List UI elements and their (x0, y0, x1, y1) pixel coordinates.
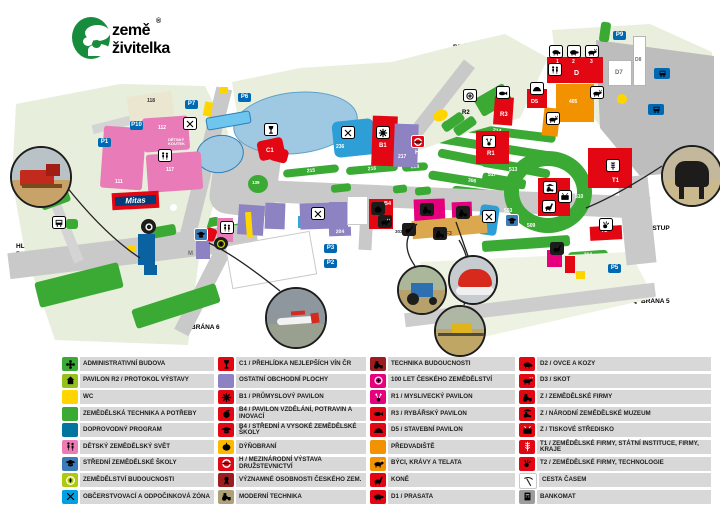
legend-item: TECHNIKA BUDOUCNOSTI (370, 357, 515, 371)
legend-item-label: STŘEDNÍ ZEMĚDĚLSKÉ ŠKOLY (80, 457, 214, 471)
pumpkin-legend-swatch (218, 440, 234, 454)
legend-item-label: CESTA ČASEM (539, 473, 711, 487)
cooperative-badge (411, 135, 425, 148)
logo-reg: ® (156, 18, 161, 25)
tractor-legend-swatch (519, 390, 535, 404)
white-dot (170, 204, 177, 211)
parking-p7: P7 (185, 100, 198, 109)
museum-icon (545, 183, 555, 193)
legend-item: PŘEDVADIŠTĚ (370, 440, 515, 454)
parking-label: P3 (327, 245, 334, 251)
horse-icon (544, 202, 554, 212)
area-label-405: 405 (569, 100, 577, 105)
gear-badge (376, 126, 390, 139)
tractor-icon (522, 392, 533, 403)
legend-item-label: C1 / PŘEHLÍDKA NEJLEPŠÍCH VÍN ČR (236, 357, 366, 371)
parking-p3: P3 (324, 244, 337, 253)
legend-item-label: Z / TISKOVÉ STŘEDISKO (537, 423, 711, 437)
cutlery-icon (185, 119, 195, 129)
hand-badge (599, 218, 613, 231)
tractor-icon (373, 359, 384, 370)
sheep-icon (551, 47, 561, 57)
area-label-117: 117 (166, 168, 174, 173)
leafcircle-legend-swatch (62, 473, 78, 487)
food-badge (482, 210, 496, 223)
legend-column: ADMINISTRATIVNÍ BUDOVAPAVILON R2 / PROTO… (62, 357, 214, 506)
tv-icon (560, 192, 570, 202)
legend-item: BÝCI, KRÁVY A TELATA (370, 457, 515, 471)
building-label-m: M (188, 251, 193, 257)
roundel-legend-swatch (218, 457, 234, 471)
parking-p1: P1 (98, 138, 111, 147)
medal-icon (221, 475, 232, 486)
tv-icon (522, 425, 533, 436)
medal-legend-swatch (218, 473, 234, 487)
plain-legend-swatch (370, 440, 386, 454)
legend-item: ZEMĚDĚLSKÁ TECHNIKA A POTŘEBY (62, 407, 214, 421)
photo-sprayer (434, 305, 486, 357)
legend-column: C1 / PŘEHLÍDKA NEJLEPŠÍCH VÍN ČROSTATNÍ … (218, 357, 366, 506)
bull (675, 161, 709, 187)
red-block (565, 256, 575, 273)
parking-label: P6 (241, 94, 248, 100)
bull-badge (378, 215, 392, 228)
pig-icon (373, 491, 384, 502)
legend-item-label: B4 / PAVILON VZDĚLÁNÍ, POTRAVIN A INOVAC… (236, 407, 366, 421)
area-label-111: 111 (115, 180, 123, 185)
program-tower (138, 234, 155, 265)
tractor-icon (435, 229, 445, 239)
tractor-badge (420, 203, 434, 216)
food-badge (341, 126, 355, 139)
green-area (415, 186, 432, 196)
fish-legend-swatch (370, 407, 386, 421)
legend-item: PAVILON R2 / PROTOKOL VÝSTAVY (62, 374, 214, 388)
horse-icon (373, 475, 384, 486)
parking-label: P5 (611, 265, 618, 271)
goat-icon (404, 225, 414, 235)
legend-item: T1 / ZEMĚDĚLSKÉ FIRMY, STÁTNÍ INSTITUCE,… (519, 440, 711, 454)
pavilion-label-b4: B4 (384, 202, 391, 208)
legend-item: CESTA ČASEM (519, 473, 711, 487)
gear-icon (378, 128, 388, 138)
deer-icon (484, 137, 494, 147)
pavilion-label-d: D (574, 70, 579, 77)
legend-item: D3 / SKOT (519, 374, 711, 388)
logo-word1: země (112, 23, 150, 40)
pavilion-label-b1: B1 (379, 143, 387, 149)
legend-item: ADMINISTRATIVNÍ BUDOVA (62, 357, 214, 371)
legend-item: Z / ZEMĚDĚLSKÉ FIRMY (519, 390, 711, 404)
wine-legend-swatch (218, 357, 234, 371)
legend-column: D2 / OVCE A KOZYD3 / SKOTZ / ZEMĚDĚLSKÉ … (519, 357, 711, 506)
cow-icon (592, 88, 602, 98)
legend-item: R3 / RYBÁŘSKÝ PAVILON (370, 407, 515, 421)
legend-item: KONĚ (370, 473, 515, 487)
bus-icon (658, 69, 667, 78)
green-area (66, 219, 78, 229)
cutlery-icon (313, 209, 323, 219)
legend-item-label: MODERNÍ TECHNIKA (236, 490, 366, 504)
zeme-zivitelka-map-page: země ® živitelka 116 115 114 113 108 105 (0, 0, 720, 508)
legend-item-label: OBČERSTVOVACÍ A ODPOČINKOVÁ ZÓNA (80, 490, 214, 504)
legend-item-label: PŘEDVADIŠTĚ (388, 440, 515, 454)
cow-badge (590, 86, 604, 99)
legend-item: DOPROVODNÝ PROGRAM (62, 423, 214, 437)
hand-icon (601, 220, 611, 230)
t100-legend-swatch (370, 374, 386, 388)
deer-icon (373, 392, 384, 403)
dot-icon (144, 222, 154, 232)
roundel-icon (221, 458, 232, 469)
wine-icon (221, 359, 232, 370)
goat-badge (402, 223, 416, 236)
gate-brana5: BRÁNA 5 (641, 299, 670, 306)
deer-legend-swatch (370, 390, 386, 404)
sheep-icon (522, 359, 533, 370)
gradcap-legend-swatch (218, 423, 234, 437)
commerce-area (329, 202, 348, 227)
parking-label: P2 (327, 260, 334, 266)
cutlery-icon (343, 128, 353, 138)
legend-item-label: D2 / OVCE A KOZY (537, 357, 711, 371)
legend-item: R1 / MYSLIVECKÝ PAVILON (370, 390, 515, 404)
parking-label: P9 (616, 32, 623, 38)
legend-item-label: BANKOMAT (537, 490, 711, 504)
area-label-517: 517 (488, 173, 496, 178)
logo-word2: živitelka (112, 41, 170, 58)
legend-item-label: H / MEZINÁRODNÍ VÝSTAVA DRUŽSTEVNICTVÍ (236, 457, 366, 471)
logo-swirl-icon (72, 17, 112, 61)
parking-label: P1 (101, 139, 108, 145)
red-dome (458, 269, 492, 287)
horse-legend-swatch (370, 473, 386, 487)
kids-badge (220, 221, 234, 234)
plain-legend-swatch (218, 374, 234, 388)
museum-icon (522, 408, 533, 419)
fish-icon (373, 408, 384, 419)
legend-item-label: D1 / PRASATA (388, 490, 515, 504)
area-111-pink (100, 126, 146, 191)
legend-item: D5 / STAVEBNÍ PAVILON (370, 423, 515, 437)
legend-item-label: R1 / MYSLIVECKÝ PAVILON (388, 390, 515, 404)
deer-badge (482, 135, 496, 148)
wine-icon (266, 125, 276, 135)
cow-icon (380, 217, 390, 227)
legend-item-label: DÝŇOBRANÍ (236, 440, 366, 454)
photo-harvester (10, 146, 72, 208)
goat-icon (552, 244, 562, 254)
leafcircle-icon (216, 239, 226, 249)
bus-icon (652, 105, 661, 114)
wheat-legend-swatch (519, 440, 535, 454)
gradcap-icon (507, 216, 517, 226)
t100-icon (373, 375, 384, 386)
pavilion-r3 (493, 96, 514, 125)
atm-legend-swatch (519, 490, 535, 504)
cow-legend-swatch (519, 374, 535, 388)
museum-legend-swatch (519, 407, 535, 421)
kids-badge (548, 63, 562, 76)
gate-brana6: BRÁNA 6 (191, 325, 220, 332)
legend-item: DÝŇOBRANÍ (218, 440, 366, 454)
legend-item: STŘEDNÍ ZEMĚDĚLSKÉ ŠKOLY (62, 457, 214, 471)
parking-p10: P10 (130, 121, 143, 130)
legend-item-label: ZEMĚDĚLSKÁ TECHNIKA A POTŘEBY (80, 407, 214, 421)
legend-item-label: DĚTSKÝ ZEMĚDĚLSKÝ SVĚT (80, 440, 214, 454)
legend-item-label: D5 / STAVEBNÍ PAVILON (388, 423, 515, 437)
museum-badge (543, 181, 557, 194)
legend-item: BANKOMAT (519, 490, 711, 504)
strip-label: 215 (307, 168, 316, 174)
cow-badge (546, 112, 560, 125)
mitas-banner: Mitas (112, 191, 160, 210)
commerce-area (265, 203, 286, 230)
wheat-icon (522, 441, 533, 452)
legend-item: D2 / OVCE A KOZY (519, 357, 711, 371)
building-legend-swatch (62, 374, 78, 388)
area-label-204: 204 (336, 228, 345, 234)
pig-legend-swatch (370, 490, 386, 504)
plain-legend-swatch (62, 423, 78, 437)
legend-item-label: R3 / RYBÁŘSKÝ PAVILON (388, 407, 515, 421)
area-label-118: 118 (147, 99, 155, 104)
goat-badge (550, 242, 564, 255)
hand-icon (522, 458, 533, 469)
fish-icon (498, 88, 508, 98)
horse-badge (542, 200, 556, 213)
tractor-legend-swatch (370, 357, 386, 371)
kids-legend-swatch (62, 440, 78, 454)
yellow-block (576, 271, 585, 279)
legend-item-label: VÝZNAMNÉ OSOBNOSTI ČESKÉHO ZEM. (236, 473, 366, 487)
white-building (347, 196, 368, 225)
commerce-area-204: 204 (329, 227, 351, 237)
cow-badge (585, 45, 599, 58)
pumpkin-badge (371, 202, 385, 215)
kids-badge (158, 149, 172, 162)
food-badge (183, 117, 197, 130)
cow-icon (587, 47, 597, 57)
tractor-icon (422, 205, 432, 215)
legend-item: C1 / PŘEHLÍDKA NEJLEPŠÍCH VÍN ČR (218, 357, 366, 371)
tv-legend-swatch (519, 423, 535, 437)
pavilion-label-r1: R1 (487, 151, 495, 157)
gradcap-icon (221, 425, 232, 436)
gear-icon (221, 392, 232, 403)
legend-item-label: KONĚ (388, 473, 515, 487)
wheat-badge (606, 159, 620, 172)
cutlery-icon (484, 212, 494, 222)
area-label-139: 139 (252, 181, 260, 186)
tractor-legend-swatch (218, 490, 234, 504)
sheep-legend-swatch (519, 357, 535, 371)
hardhat-icon (373, 425, 384, 436)
gear-legend-swatch (218, 390, 234, 404)
legend-item: WC (62, 390, 214, 404)
apple-legend-swatch (218, 407, 234, 421)
bus-stop-badge (648, 104, 664, 115)
kids-icon (65, 441, 76, 452)
cutlery-icon (65, 491, 76, 502)
area-label-217: 217 (398, 155, 406, 160)
parking-label: P10 (131, 122, 142, 128)
kids-icon (550, 65, 560, 75)
legend-item-label: Z / ZEMĚDĚLSKÉ FIRMY (537, 390, 711, 404)
green-area (393, 184, 408, 193)
pig-icon (569, 47, 579, 57)
wheat-icon (608, 161, 618, 171)
cow-icon (522, 375, 533, 386)
building-icon (65, 375, 76, 386)
atm-icon (522, 491, 533, 502)
legend-item: H / MEZINÁRODNÍ VÝSTAVA DRUŽSTEVNICTVÍ (218, 457, 366, 471)
parking-p9: P9 (613, 31, 626, 40)
flower-icon (65, 359, 76, 370)
cow-icon (548, 114, 558, 124)
legend-item-label: TECHNIKA BUDOUCNOSTI (388, 357, 515, 371)
cow-icon (373, 458, 384, 469)
area-label-513: 513 (509, 168, 517, 173)
plain-legend-swatch (62, 390, 78, 404)
parking-p2: P2 (324, 259, 337, 268)
tractor-badge (433, 227, 447, 240)
pavilion-label-d7: D7 (615, 70, 623, 76)
gradcap-legend-swatch (62, 457, 78, 471)
gradcap-icon (65, 458, 76, 469)
legend-item-label: ADMINISTRATIVNÍ BUDOVA (80, 357, 214, 371)
bus-icon (54, 218, 64, 228)
bus-badge (52, 216, 66, 229)
photo-bull (661, 145, 720, 207)
d-hall-2: 2 (572, 60, 575, 65)
legend-item-label: 100 LET ČESKÉHO ZEMĚDĚLSTVÍ (388, 374, 515, 388)
strip-label: 306 (467, 178, 476, 184)
legend-column: TECHNIKA BUDOUCNOSTI100 LET ČESKÉHO ZEMĚ… (370, 357, 515, 506)
bus-stop-badge (654, 68, 670, 79)
legend-item-label: DOPROVODNÝ PROGRAM (80, 423, 214, 437)
t100-icon (465, 91, 475, 101)
legend-item-label: PAVILON R2 / PROTOKOL VÝSTAVY (80, 374, 214, 388)
legend: ADMINISTRATIVNÍ BUDOVAPAVILON R2 / PROTO… (62, 357, 711, 506)
area-label-236: 236 (336, 145, 344, 150)
wine-badge (264, 123, 278, 136)
hardhat-badge (530, 82, 544, 95)
yellow-dot (617, 94, 627, 104)
legend-item: D1 / PRASATA (370, 490, 515, 504)
legend-item-label: T2 / ZEMĚDĚLSKÉ FIRMY, TECHNOLOGIE (537, 457, 711, 471)
tractor-icon (221, 491, 232, 502)
legend-item: MODERNÍ TECHNIKA (218, 490, 366, 504)
legend-item-label: ZEMĚDĚLSTVÍ BUDOUCNOSTI (80, 473, 214, 487)
future-badge (214, 237, 228, 250)
legend-item-label: D3 / SKOT (537, 374, 711, 388)
food-badge (311, 207, 325, 220)
legend-item-label: WC (80, 390, 214, 404)
program-annex (144, 265, 157, 275)
legend-item: ZEMĚDĚLSTVÍ BUDOUCNOSTI (62, 473, 214, 487)
legend-item-label: T1 / ZEMĚDĚLSKÉ FIRMY, STÁTNÍ INSTITUCE,… (537, 440, 711, 454)
detsky-koutek-label: DĚTSKÝ KOUTEK (168, 138, 194, 146)
d-hall-3: 3 (590, 60, 593, 65)
legend-item-label: Z / NÁRODNÍ ZEMĚDĚLSKÉ MUZEUM (537, 407, 711, 421)
legend-item: T2 / ZEMĚDĚLSKÉ FIRMY, TECHNOLOGIE (519, 457, 711, 471)
kids-icon (160, 151, 170, 161)
sheep-badge (549, 45, 563, 58)
road-entrance (617, 175, 656, 266)
hardhat-icon (532, 84, 542, 94)
parking-p6: P6 (238, 93, 251, 102)
hardhat-legend-swatch (370, 423, 386, 437)
pavilion-label-t1: T1 (612, 178, 619, 184)
area-label-509: 509 (527, 224, 535, 229)
leafcircle-icon (65, 475, 76, 486)
program-badge (141, 219, 156, 234)
photo-red-dome (448, 255, 498, 305)
cutlery-legend-swatch (62, 490, 78, 504)
tv-badge (558, 190, 572, 203)
area-117-pink (146, 151, 204, 193)
flower-legend-swatch (62, 357, 78, 371)
legend-item: Z / TISKOVÉ STŘEDISKO (519, 423, 711, 437)
pavilion-label-r2: R2 (462, 110, 470, 116)
parking-p5: P5 (608, 264, 621, 273)
school-badge (194, 228, 208, 241)
pavilion-label-r3: R3 (500, 112, 508, 118)
legend-item: OBČERSTVOVACÍ A ODPOČINKOVÁ ZÓNA (62, 490, 214, 504)
legend-item-label: OSTATNÍ OBCHODNÍ PLOCHY (236, 374, 366, 388)
logo: země ® živitelka (72, 15, 272, 71)
yellow-block (128, 245, 136, 252)
100-let-badge (463, 89, 477, 102)
scythe-legend-swatch (519, 473, 537, 489)
mitas-logo: Mitas (125, 195, 146, 205)
strip-label: 216 (368, 166, 377, 172)
school-badge (505, 214, 519, 227)
roundel-icon (413, 137, 423, 147)
tractor-badge (456, 206, 470, 219)
legend-item-label: B4 / STŘEDNÍ A VYSOKÉ ZEMĚDĚLSKÉ ŠKOLY (236, 423, 366, 437)
kids-icon (222, 223, 232, 233)
pumpkin-icon (221, 441, 232, 452)
hand-legend-swatch (519, 457, 535, 471)
strip-215: 215 (283, 164, 340, 178)
legend-item-label: B1 / PRŮMYSLOVÝ PAVILON (236, 390, 366, 404)
tractor-icon (458, 208, 468, 218)
apple-icon (221, 408, 232, 419)
legend-item: OSTATNÍ OBCHODNÍ PLOCHY (218, 374, 366, 388)
legend-item: 100 LET ČESKÉHO ZEMĚDĚLSTVÍ (370, 374, 515, 388)
pavilion-label-d8: D8 (635, 58, 641, 63)
parking-label: P7 (188, 101, 195, 107)
plain-legend-swatch (62, 407, 78, 421)
legend-item: VÝZNAMNÉ OSOBNOSTI ČESKÉHO ZEM. (218, 473, 366, 487)
legend-item-label: BÝCI, KRÁVY A TELATA (388, 457, 515, 471)
yellow-block (220, 87, 228, 93)
pavilion-label-d5: D5 (531, 100, 538, 106)
pumpkin-icon (373, 204, 383, 214)
pavilion-label-c1: C1 (266, 148, 274, 154)
scythe-icon (523, 476, 534, 487)
legend-item: B1 / PRŮMYSLOVÝ PAVILON (218, 390, 366, 404)
pavilion-label-h: H (415, 150, 419, 156)
legend-item: B4 / PAVILON VZDĚLÁNÍ, POTRAVIN A INOVAC… (218, 407, 366, 421)
legend-item: B4 / STŘEDNÍ A VYSOKÉ ZEMĚDĚLSKÉ ŠKOLY (218, 423, 366, 437)
legend-item: DĚTSKÝ ZEMĚDĚLSKÝ SVĚT (62, 440, 214, 454)
area-label-112: 112 (158, 126, 166, 131)
legend-item: Z / NÁRODNÍ ZEMĚDĚLSKÉ MUZEUM (519, 407, 711, 421)
gradcap-icon (196, 230, 206, 240)
